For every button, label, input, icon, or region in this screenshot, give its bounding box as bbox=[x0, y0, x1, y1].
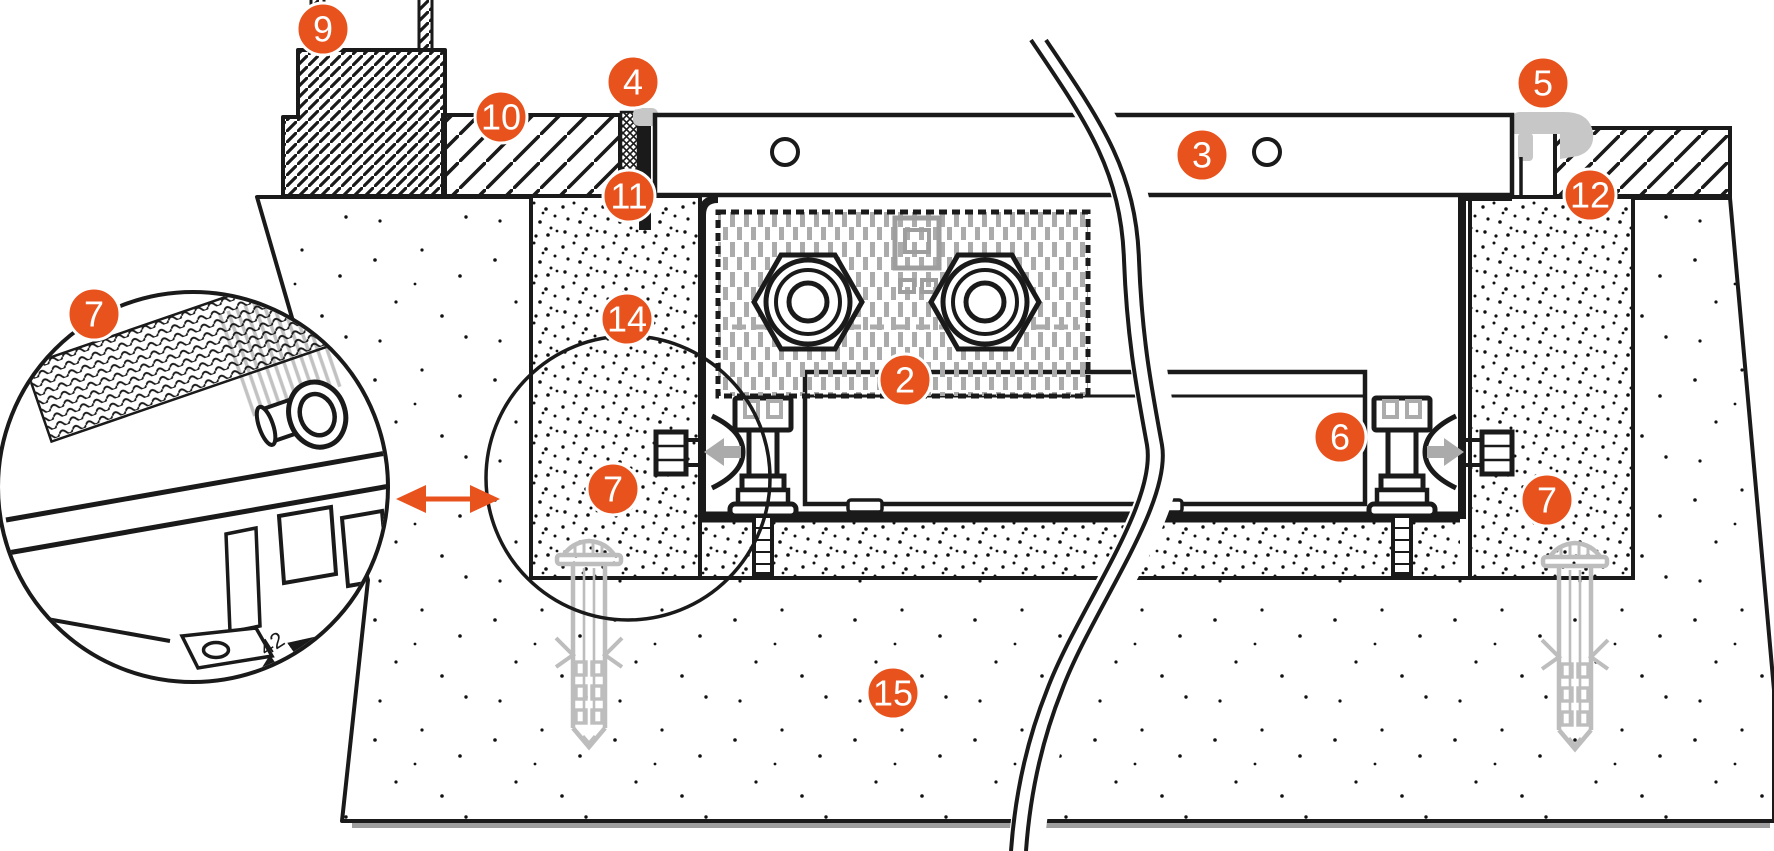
callout-label: 7 bbox=[84, 294, 104, 335]
installation-section-drawing: 42 9451031112714267715 bbox=[0, 0, 1774, 851]
callout-4-edge-profile-left: 4 bbox=[607, 56, 659, 108]
callout-6-adjustable-foot: 6 bbox=[1314, 411, 1366, 463]
callout-label: 15 bbox=[873, 673, 913, 714]
callout-label: 10 bbox=[481, 97, 521, 138]
grille-hole bbox=[1254, 139, 1280, 165]
callout-label: 6 bbox=[1330, 417, 1350, 458]
callout-14-edge-insulation: 14 bbox=[601, 293, 653, 345]
callout-label: 7 bbox=[603, 469, 623, 510]
callout-7-bracket-detail: 7 bbox=[68, 288, 120, 340]
callout-9-wall-block: 9 bbox=[297, 3, 349, 55]
callout-label: 9 bbox=[313, 9, 333, 50]
callout-label: 5 bbox=[1533, 63, 1553, 104]
callout-label: 12 bbox=[1570, 175, 1610, 216]
callout-7-wall-bracket-left: 7 bbox=[587, 463, 639, 515]
callout-15-concrete-slab: 15 bbox=[867, 667, 919, 719]
pipe-union-left bbox=[754, 255, 862, 349]
callout-7-wall-bracket-right: 7 bbox=[1521, 474, 1573, 526]
anchor-rod-right bbox=[419, 0, 432, 50]
grille-hole bbox=[772, 139, 798, 165]
detail-slot bbox=[279, 507, 336, 583]
callout-10-floor-finish-left: 10 bbox=[475, 91, 527, 143]
pipe-union-right bbox=[931, 255, 1039, 349]
floor-finish-left bbox=[443, 115, 620, 196]
callout-label: 14 bbox=[607, 299, 647, 340]
callout-5-edge-profile-right: 5 bbox=[1517, 57, 1569, 109]
callout-label: 11 bbox=[610, 176, 647, 217]
levelling-layer bbox=[702, 522, 1460, 576]
callout-label: 2 bbox=[895, 360, 915, 401]
callout-12-floor-finish-right: 12 bbox=[1564, 169, 1616, 221]
callout-3-grille-cover: 3 bbox=[1176, 129, 1228, 181]
callout-2-heat-exchanger: 2 bbox=[879, 354, 931, 406]
callout-label: 3 bbox=[1192, 135, 1212, 176]
edge-insulation-left bbox=[531, 196, 700, 578]
callout-label: 4 bbox=[623, 62, 643, 103]
diagram-stage: 42 9451031112714267715 bbox=[0, 0, 1774, 851]
callout-11-tub-rim-left: 11 bbox=[603, 170, 655, 222]
callout-label: 7 bbox=[1537, 480, 1557, 521]
